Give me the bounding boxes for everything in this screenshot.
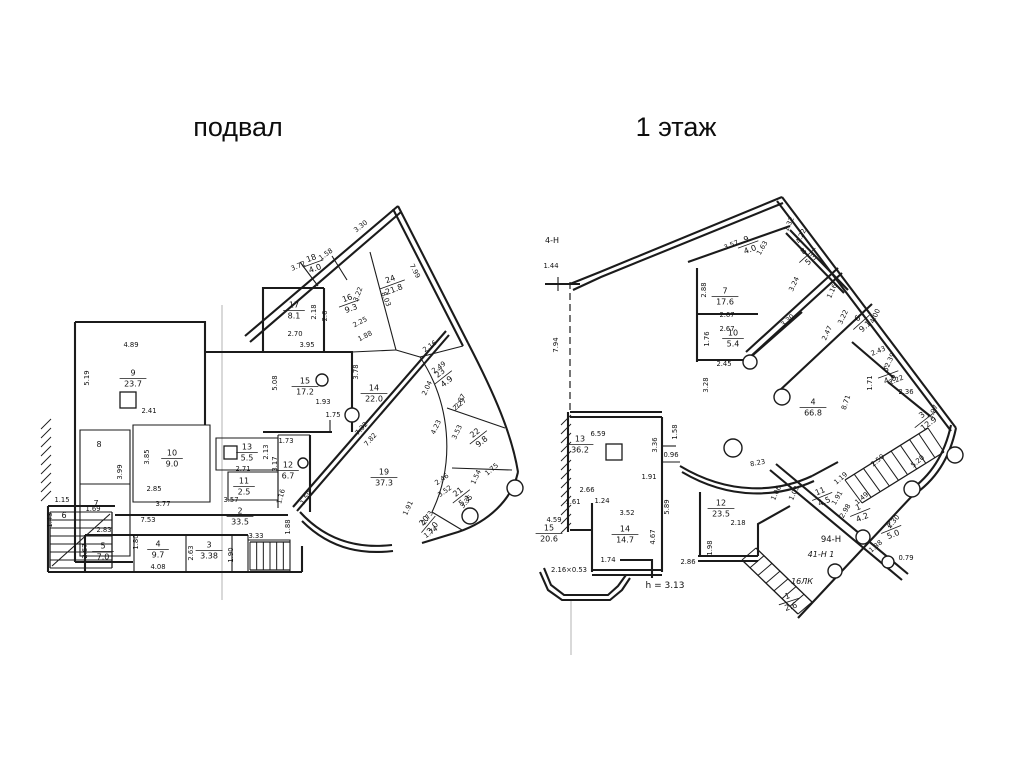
room-number: 5: [100, 542, 105, 551]
dim-label: 1.75: [483, 462, 500, 478]
room-number: 19: [379, 468, 389, 477]
column-icon: [856, 530, 870, 544]
wall: [250, 212, 401, 342]
wall: [75, 322, 205, 352]
column-icon: [316, 374, 328, 386]
dim-label: 0.79: [898, 554, 913, 562]
floorplans-drawing: 923.7109.0135.5112.5126.757.049.733.3823…: [0, 0, 1024, 767]
basement-plan: 923.7109.0135.5112.5126.757.049.733.3823…: [41, 206, 523, 600]
dim-label: 7.99: [408, 262, 422, 279]
room-label-14: 1422.0: [361, 384, 388, 404]
room-number: 9: [130, 369, 135, 378]
ground-hatch: [41, 437, 51, 447]
dim-label: 0.96: [663, 451, 678, 459]
dim-label: 3.72: [290, 260, 307, 273]
partition-wall: [396, 350, 420, 357]
room-number: 17: [289, 301, 299, 310]
dim-label: 5.19: [83, 370, 91, 385]
ground-hatch: [41, 491, 51, 501]
stairs-step: [928, 428, 944, 452]
dim-label: 2.86: [680, 558, 695, 566]
room-number: 15: [300, 377, 310, 386]
room-label-12: 126.7: [277, 461, 299, 481]
room-area: 23.7: [124, 380, 142, 389]
floor1-plan: 94.0717.6105.485.369.154.0312.9466.81336…: [536, 197, 963, 655]
column-icon: [882, 556, 894, 568]
stairs-step: [758, 563, 772, 575]
dim-label: 1.19: [832, 471, 849, 487]
dim-label: 5.08: [271, 375, 279, 390]
dim-label: 2.04: [420, 380, 434, 397]
dim-label: 4.22: [794, 228, 808, 245]
dim-label: 2.45: [716, 360, 731, 368]
dim-label: 3.99: [116, 464, 124, 479]
wall: [297, 335, 449, 511]
dim-label: 1.88: [284, 519, 292, 534]
dim-label: 1.80: [132, 534, 140, 549]
dim-label: 1.16: [275, 488, 287, 505]
dim-label: 2.50: [869, 453, 886, 469]
dim-label: 1.59: [299, 489, 314, 506]
partition-wall: [80, 430, 130, 556]
room-area: 9.3: [344, 302, 359, 315]
dim-label: 2.41: [141, 407, 156, 415]
dim-label: 8: [96, 440, 101, 449]
column-icon: [774, 389, 790, 405]
room-label-4: 466.8: [800, 398, 827, 418]
stairs-step: [891, 451, 907, 475]
dim-label: 2.36: [898, 388, 913, 396]
room-area: 37.3: [375, 479, 393, 488]
dim-label: 1.69: [85, 505, 100, 513]
dim-label: 2.25: [351, 315, 368, 329]
dim-label: 2.67: [81, 543, 89, 558]
column-icon: [298, 458, 308, 468]
dim-label: 1.91: [401, 500, 415, 517]
dim-label: 3.52: [619, 509, 634, 517]
dim-label: 4-Н: [545, 236, 559, 245]
ground-hatch: [561, 487, 571, 497]
room-number: 12: [283, 461, 293, 470]
dim-label: 2.18: [310, 304, 318, 319]
room-number: 1: [784, 591, 792, 601]
wall: [293, 331, 446, 507]
dim-label: 2.13: [262, 444, 270, 459]
room-label-15: 1517.2: [292, 377, 319, 397]
dim-label: 1.91: [830, 489, 844, 506]
dim-label: 3.77: [155, 500, 170, 508]
ground-hatch: [41, 419, 51, 429]
dim-label: 1.90: [227, 547, 235, 562]
room-number: 4: [155, 540, 160, 549]
dim-label: 7.53: [140, 516, 155, 524]
floorplan-page: подвал 1 этаж 923.7109.0135.5112.5126.75…: [0, 0, 1024, 767]
room-area: 5.4: [727, 340, 740, 349]
room-area: 4.0: [743, 243, 758, 256]
ground-hatch: [561, 451, 571, 461]
stairs-rail: [845, 428, 928, 480]
dim-label: 3.57: [723, 239, 740, 252]
column-square-icon: [224, 446, 237, 459]
room-number: 13: [242, 443, 252, 452]
dim-label: 1.54: [469, 469, 483, 486]
dim-label: 2.30: [886, 513, 902, 530]
dim-label: 2.6: [321, 311, 329, 322]
dim-label: 3.57: [223, 496, 238, 504]
room-area: 66.8: [804, 409, 822, 418]
stairs-step: [882, 457, 899, 480]
room-label-14: 1414.7: [612, 525, 639, 545]
room-label-7: 717.6: [712, 287, 739, 307]
ground-hatch: [561, 424, 571, 434]
ground-hatch: [561, 460, 571, 470]
column-icon: [828, 564, 842, 578]
room-number: 3: [206, 541, 211, 550]
room-area: 6.7: [282, 472, 295, 481]
stairs-step: [766, 571, 780, 583]
ground-hatch: [41, 464, 51, 474]
room-label-12: 1223.5: [708, 499, 735, 519]
dim-label: 6.59: [590, 430, 605, 438]
dim-label: 2.70: [287, 330, 302, 338]
wall: [300, 512, 392, 546]
dim-label: 41-Н 1: [808, 550, 835, 559]
ground-hatch: [41, 482, 51, 492]
room-label-15: 1520.6: [536, 524, 563, 544]
room-number: 7: [722, 287, 727, 296]
room-label-11: 112.5: [233, 477, 255, 497]
dim-label: 4.00: [868, 308, 882, 325]
dim-label: 3.28: [702, 377, 710, 392]
room-area: 14.7: [616, 536, 634, 545]
dim-label: 3.36: [651, 437, 659, 452]
room-area: 33.5: [231, 518, 249, 527]
ground-hatch: [41, 446, 51, 456]
ground-hatch: [561, 433, 571, 443]
dim-label: 3.95: [299, 341, 314, 349]
dim-label: 2.88: [700, 282, 708, 297]
room-area: 4.2: [855, 511, 870, 524]
room-number: 11: [239, 477, 249, 486]
dim-label: 94-Н: [821, 535, 841, 545]
room-label-19: 1937.3: [371, 468, 398, 488]
room-label-9: 923.7: [120, 369, 147, 389]
dim-label: 8.71: [840, 394, 852, 411]
column-icon: [724, 439, 742, 457]
wall: [398, 206, 468, 343]
dim-label: 2.98: [838, 502, 852, 519]
dim-label: 1.44: [543, 262, 558, 270]
dim-label: 3.53: [450, 424, 464, 441]
dim-label: 4.08: [150, 563, 165, 571]
partition-wall: [452, 468, 512, 470]
room-area: 7.0: [97, 553, 110, 562]
dim-label: 1.75: [325, 411, 340, 419]
ground-hatch: [561, 442, 571, 452]
dim-label: 2.43: [870, 345, 887, 358]
dim-label: 1.61: [565, 498, 580, 506]
wall: [782, 197, 956, 428]
ground-hatch: [41, 455, 51, 465]
room-area: 20.6: [540, 535, 558, 544]
dim-label: 2.18: [730, 519, 745, 527]
dim-label: 1.24: [594, 497, 609, 505]
dim-label: 1.93: [315, 398, 330, 406]
room-area: 2.5: [238, 488, 251, 497]
room-label-17: 178.1: [283, 301, 305, 321]
ground-hatch: [561, 523, 571, 533]
dim-label: 1.76: [703, 331, 711, 346]
dim-label: 2.67: [719, 311, 734, 319]
room-label-2: 233.5: [227, 507, 254, 527]
dim-label: 3.22: [352, 286, 365, 303]
column-icon: [743, 355, 757, 369]
room-area: 17.6: [716, 298, 734, 307]
dim-label: 1.88: [356, 329, 373, 343]
dim-label: 1.71: [866, 375, 874, 390]
dim-label: 4.23: [429, 419, 443, 436]
dim-label: 3.22: [836, 309, 850, 326]
room-label-13: 1336.2: [567, 435, 594, 455]
room-number: 4: [810, 398, 815, 407]
dim-label: 3.30: [779, 312, 796, 328]
stairs-step: [863, 468, 880, 491]
dim-label: 1.15: [54, 496, 69, 504]
wall: [812, 462, 838, 476]
dim-label: 1.74: [600, 556, 615, 564]
dim-label: 1.58: [671, 424, 679, 439]
room-area: 8.1: [288, 312, 301, 321]
dim-label: 1.43: [46, 512, 54, 527]
room-label-4: 49.7: [147, 540, 169, 560]
dim-label: 1.58: [317, 247, 334, 262]
dim-label: 5.20: [909, 454, 926, 470]
room-number: 13: [575, 435, 585, 444]
dim-label: 8.23: [750, 458, 766, 469]
room-number: 2: [237, 507, 242, 516]
dim-label: 6: [61, 511, 66, 520]
room-area: 36.2: [571, 446, 589, 455]
dim-label: 2.83: [96, 526, 111, 534]
dim-label: 1.73: [278, 437, 293, 445]
room-label-13: 135.5: [236, 443, 258, 463]
room-number: 14: [620, 525, 630, 534]
wall: [758, 506, 790, 556]
dim-label: 1.91: [641, 473, 656, 481]
ground-hatch: [561, 514, 571, 524]
wall: [393, 209, 463, 346]
dim-label: 2.71: [235, 465, 250, 473]
dim-label: 3.85: [143, 449, 151, 464]
stairs-step: [798, 602, 812, 614]
room-area: 17.2: [296, 388, 314, 397]
wall: [688, 226, 790, 262]
room-area: 23.5: [712, 510, 730, 519]
stairs-step: [742, 548, 756, 560]
ground-hatch: [561, 478, 571, 488]
dim-label: 3.24: [787, 276, 801, 293]
column-square-icon: [606, 444, 622, 460]
dim-label: 16ЛК: [791, 577, 813, 586]
dim-label: 1.63: [755, 239, 769, 256]
ground-hatch: [561, 469, 571, 479]
room-number: 15: [544, 524, 554, 533]
dim-label: 5.89: [663, 499, 671, 514]
dim-label: 4.89: [123, 341, 138, 349]
dim-label: 4.59: [546, 516, 561, 524]
dim-label: 2.66: [579, 486, 594, 494]
room-area: 3.38: [200, 552, 218, 561]
ground-hatch: [561, 505, 571, 515]
column-square-icon: [120, 392, 136, 408]
ground-hatch: [561, 415, 571, 425]
room-area: 9.7: [152, 551, 165, 560]
dim-label: 2.47: [820, 325, 834, 342]
dim-label: 3.78: [352, 364, 360, 379]
room-number: 10: [167, 449, 177, 458]
dim-label: h = 3.13: [645, 581, 684, 591]
room-area: 9.0: [166, 460, 179, 469]
dim-label: 7.94: [552, 337, 560, 352]
dim-label: 3.33: [248, 532, 263, 540]
room-area: 22.0: [365, 395, 383, 404]
ground-hatch: [41, 473, 51, 483]
column-icon: [507, 480, 523, 496]
dim-label: 3.17: [271, 456, 279, 471]
dim-label: 2.67: [719, 325, 734, 333]
ground-hatch: [41, 428, 51, 438]
room-label-3: 33.38: [196, 541, 223, 561]
dim-label: 2.16×0.53: [551, 566, 587, 574]
room-label-10: 109.0: [161, 449, 183, 469]
partition-wall: [352, 350, 396, 352]
column-icon: [947, 447, 963, 463]
room-number: 14: [369, 384, 379, 393]
room-label-22: 229.8: [464, 423, 493, 452]
column-icon: [904, 481, 920, 497]
room-number: 12: [716, 499, 726, 508]
room-area: 5.0: [886, 528, 901, 541]
dim-label: 2.39: [883, 352, 897, 369]
room-area: 5.5: [241, 454, 254, 463]
stairs-step: [774, 579, 788, 591]
dim-label: 4.67: [649, 529, 657, 544]
dim-label: 2.63: [187, 545, 195, 560]
dim-label: 2.85: [146, 485, 161, 493]
dim-label: 1.98: [706, 540, 714, 555]
column-icon: [345, 408, 359, 422]
wall: [468, 343, 518, 472]
